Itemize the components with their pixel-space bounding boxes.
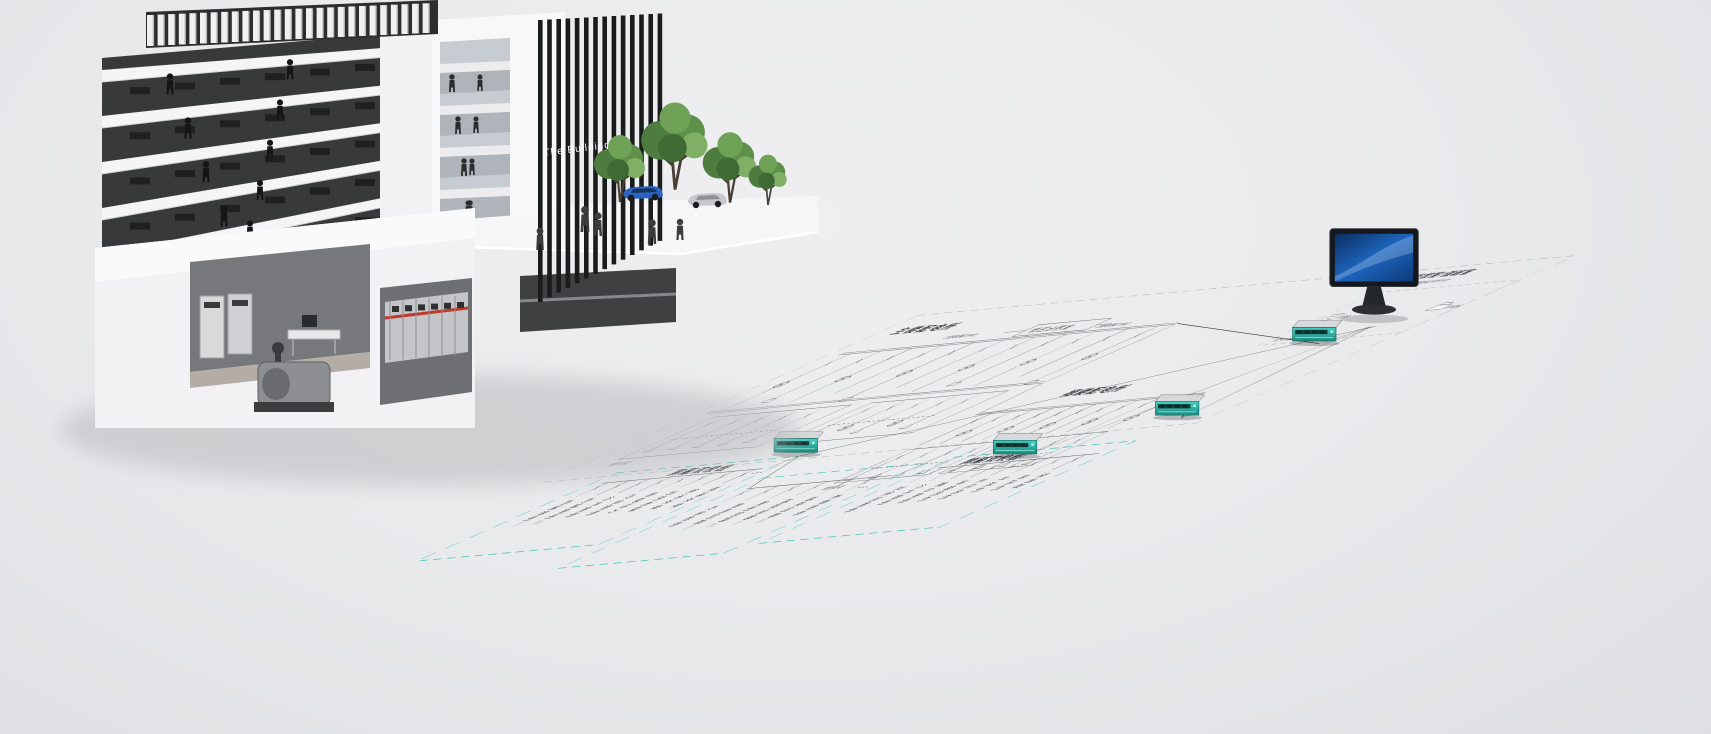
- person-head: [537, 228, 544, 235]
- breaker-tick: [945, 350, 959, 355]
- desk-block: [175, 170, 195, 177]
- desk-block: [220, 163, 240, 170]
- cell-dial: [457, 302, 464, 308]
- breaker-tick: [917, 453, 931, 458]
- feed-left-label: 1路电源(10kV): [940, 332, 984, 340]
- collector-led: [1031, 443, 1034, 446]
- breaker-tick: [926, 471, 938, 475]
- breaker-tick: [941, 451, 955, 456]
- feeder-line: [1087, 398, 1159, 430]
- desk-block: [220, 120, 240, 127]
- person-head: [277, 99, 283, 105]
- person-head: [287, 59, 293, 65]
- slat-bar: [630, 15, 635, 255]
- person-head: [257, 180, 263, 186]
- load-box: [946, 382, 961, 386]
- person-head: [449, 74, 454, 79]
- collector-top: [1293, 321, 1342, 328]
- collector-port: [1160, 405, 1164, 408]
- cell-dial: [405, 305, 412, 311]
- canopy: [717, 132, 742, 157]
- collector-svg: [988, 430, 1042, 459]
- person-head: [455, 116, 460, 121]
- monitor-stand: [1362, 287, 1386, 307]
- canopy-shade: [658, 134, 687, 163]
- breaker-tick: [988, 417, 1002, 422]
- breaker-tick: [1037, 342, 1051, 347]
- tree: [703, 132, 757, 202]
- collector-port: [1021, 444, 1025, 447]
- canopy-shade: [607, 159, 629, 181]
- data-collector-2: [988, 430, 1042, 459]
- breaker-tick: [1030, 413, 1044, 418]
- collector-port: [998, 444, 1002, 447]
- cell-dial: [418, 304, 425, 310]
- person-head: [594, 212, 601, 219]
- desk-block: [355, 141, 375, 148]
- desk-block: [130, 177, 150, 184]
- cell-dial: [392, 306, 399, 312]
- breaker-tick: [1051, 411, 1065, 416]
- breaker-tick: [1048, 460, 1060, 464]
- cell-dial: [431, 304, 438, 310]
- collector-port: [1005, 444, 1009, 447]
- desk-block: [265, 73, 285, 80]
- generator: [254, 362, 334, 412]
- collector-shadow: [1290, 341, 1339, 346]
- breaker-tick: [976, 347, 990, 352]
- breaker-tick: [1070, 439, 1084, 444]
- breaker-tick: [1068, 339, 1082, 344]
- person-head: [473, 116, 478, 121]
- breaker-tick: [1114, 405, 1128, 410]
- monitor-base: [1352, 304, 1396, 314]
- person-head: [167, 73, 173, 79]
- collector-svg: [1287, 317, 1341, 346]
- circuit-feeder: [909, 468, 943, 483]
- monitor-shadow: [1340, 315, 1408, 324]
- desk-block: [130, 132, 150, 139]
- delta-symbol: [899, 424, 916, 429]
- person-head: [469, 158, 474, 163]
- desk-block: [310, 69, 330, 76]
- collector-led: [1330, 330, 1333, 333]
- collector-led: [1193, 404, 1196, 407]
- person-head: [461, 158, 466, 163]
- breaker-tick: [908, 403, 922, 408]
- feeder-line: [1066, 400, 1138, 432]
- canopy: [608, 135, 632, 159]
- collector-port: [1167, 405, 1171, 408]
- person-head: [247, 220, 253, 226]
- cell-dial: [444, 303, 451, 309]
- subfeeder-line: [914, 395, 979, 424]
- monitor-computer: [1323, 224, 1425, 326]
- circuit-feeder: [971, 462, 1005, 477]
- desk-block: [310, 108, 330, 115]
- person-head: [185, 117, 191, 123]
- atrium-gap: [440, 154, 510, 178]
- collector-port: [1183, 405, 1187, 408]
- breaker-tick: [1009, 415, 1023, 420]
- collector-svg: [1150, 391, 1204, 420]
- desk-block: [265, 196, 285, 203]
- breaker-tick: [965, 448, 979, 453]
- desk-block: [310, 188, 330, 195]
- collector-port: [1297, 331, 1301, 334]
- collector-top: [993, 434, 1042, 441]
- breaker-tick: [1099, 336, 1113, 341]
- canopy: [759, 155, 777, 173]
- desk-block: [175, 214, 195, 221]
- breaker-tick: [1069, 458, 1081, 462]
- person-head: [648, 219, 656, 227]
- collector-top: [1155, 395, 1204, 402]
- canopy-shade: [716, 157, 739, 180]
- breaker-tick: [932, 401, 946, 406]
- breaker-tick: [1135, 404, 1149, 409]
- data-collector-4: [1287, 317, 1341, 346]
- breaker-tick: [1093, 407, 1107, 412]
- canopy-shade: [758, 173, 775, 190]
- desk-block: [355, 64, 375, 71]
- person-head: [581, 206, 589, 214]
- breaker-tick: [1130, 333, 1144, 338]
- feeder-line: [1045, 402, 1117, 434]
- slat-bar: [538, 20, 543, 302]
- collector-port: [1305, 331, 1309, 334]
- collector-port: [1320, 331, 1324, 334]
- circuit-feeder: [930, 466, 964, 481]
- desk-block: [130, 223, 150, 230]
- person-head: [477, 74, 482, 79]
- podium-substation-title: 裙楼配电所: [1055, 383, 1137, 398]
- breaker-tick: [914, 353, 928, 358]
- desk-block: [220, 78, 240, 85]
- breaker-tick: [1072, 409, 1086, 414]
- circuit-feeder: [950, 464, 984, 479]
- breaker-tick: [1006, 344, 1020, 349]
- desk-block: [355, 102, 375, 109]
- collector-port: [1175, 405, 1179, 408]
- collector-shadow: [1153, 415, 1202, 420]
- data-collector-3: [1150, 391, 1204, 420]
- feeder-line: [919, 413, 991, 445]
- desk-block: [310, 148, 330, 155]
- collector-port: [1013, 444, 1017, 447]
- circuit-feeder: [1052, 455, 1086, 470]
- breaker-tick: [967, 419, 981, 424]
- person-head: [465, 200, 470, 205]
- collector-shadow: [991, 454, 1040, 459]
- person-head: [221, 205, 227, 211]
- desk-block: [175, 82, 195, 89]
- canopy: [659, 103, 690, 134]
- podium-feeders: [918, 396, 1184, 446]
- person-head: [203, 161, 209, 167]
- person-head: [677, 219, 683, 225]
- switchgear-row: [385, 292, 468, 363]
- building-illustration: The Building: [40, 0, 900, 520]
- scene: 主楼配电所 低压分界室 1路电源(10kV) 2路电源(10kV) 消防负荷 裙…: [0, 0, 1711, 734]
- desk-block: [130, 87, 150, 94]
- breaker-tick: [957, 399, 971, 404]
- person-head: [267, 140, 273, 146]
- desk-block: [355, 179, 375, 186]
- collector-port: [1312, 331, 1316, 334]
